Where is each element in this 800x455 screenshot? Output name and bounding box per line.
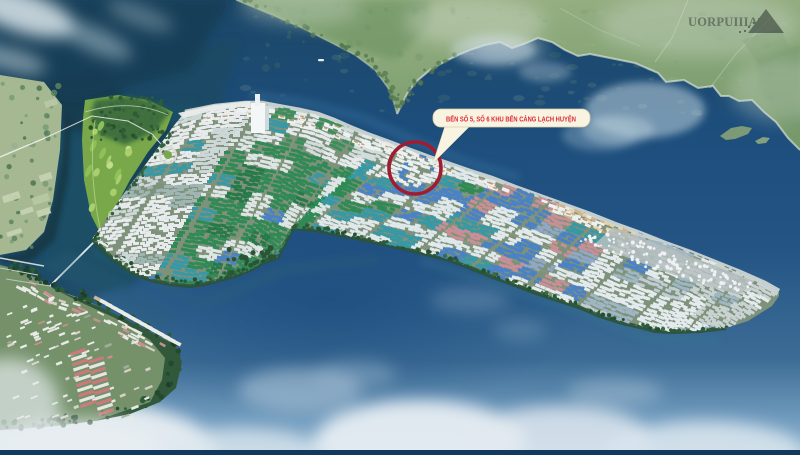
- svg-text:BẾN SỐ 5, SỐ 6 KHU BẾN CẢNG LẠ: BẾN SỐ 5, SỐ 6 KHU BẾN CẢNG LẠCH HUYỆN: [446, 114, 576, 124]
- svg-text:UORPUIIIA: UORPUIIIA: [688, 15, 758, 29]
